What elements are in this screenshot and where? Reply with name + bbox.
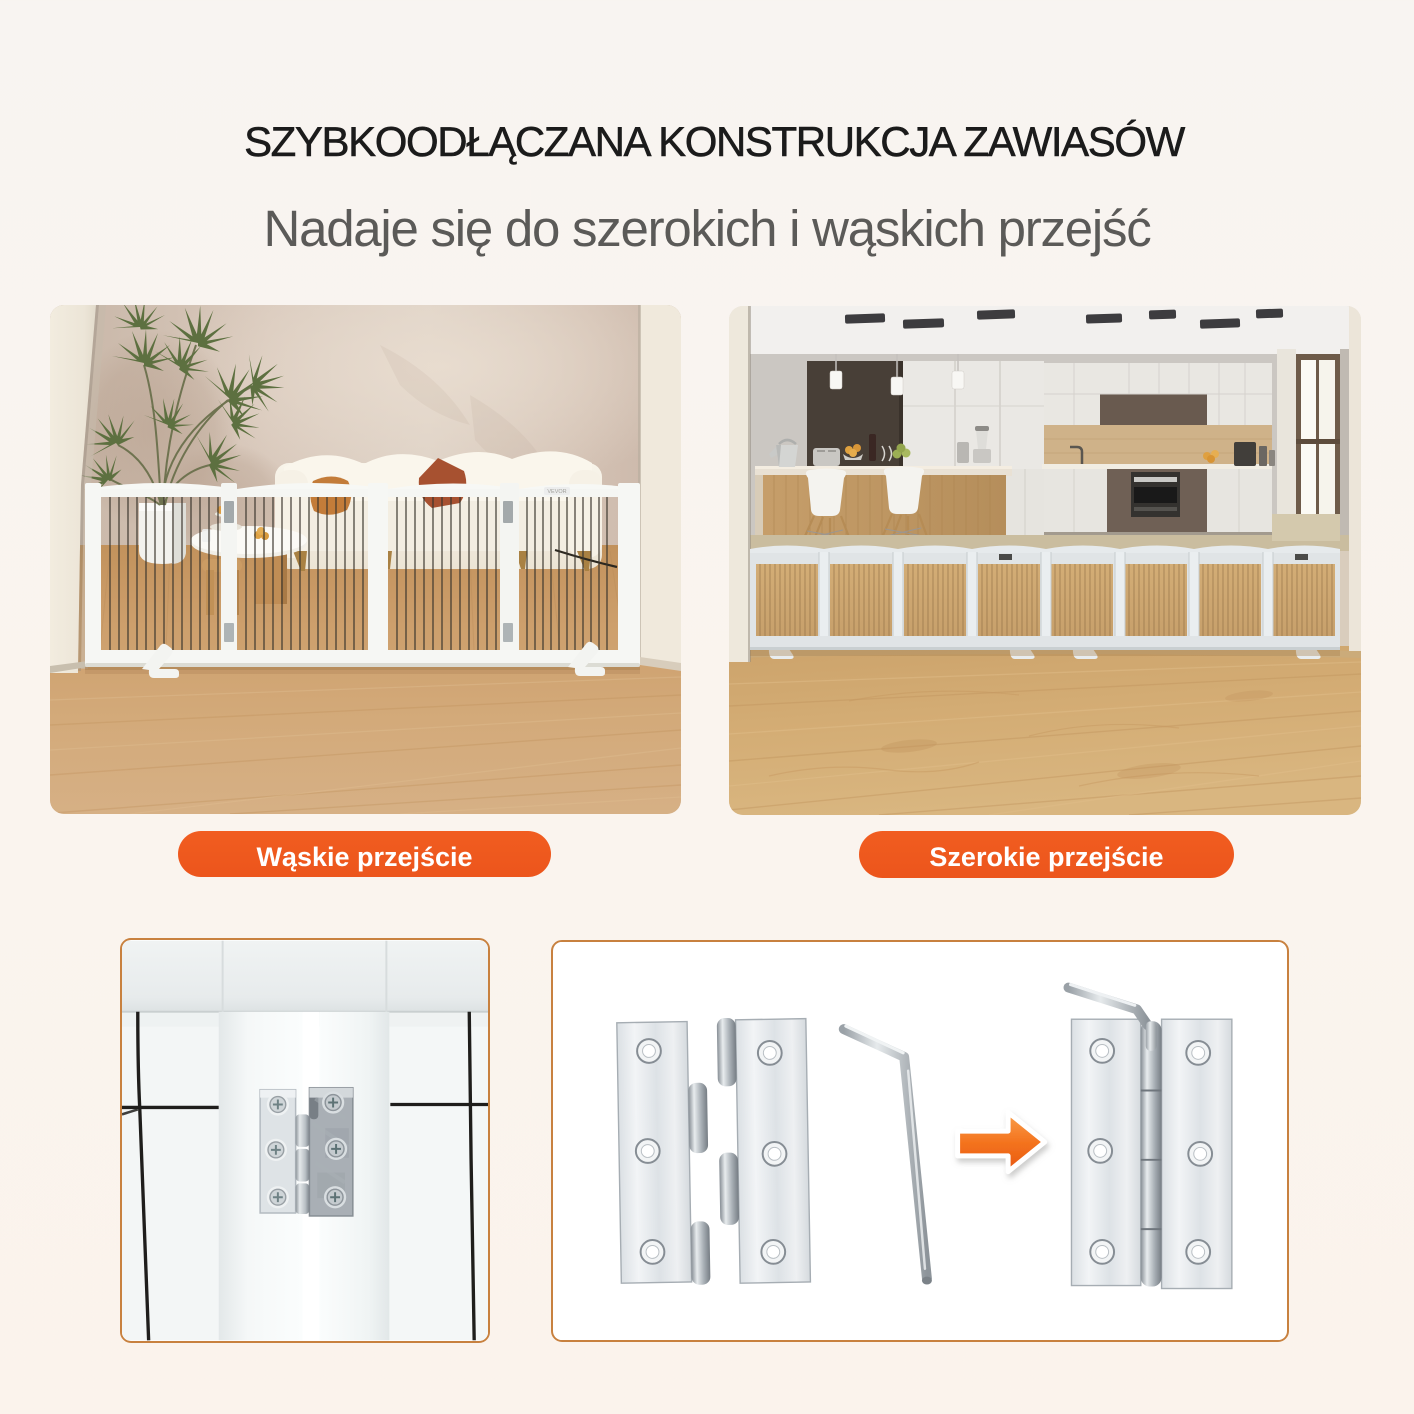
svg-text:VEVOR: VEVOR [547, 489, 566, 495]
